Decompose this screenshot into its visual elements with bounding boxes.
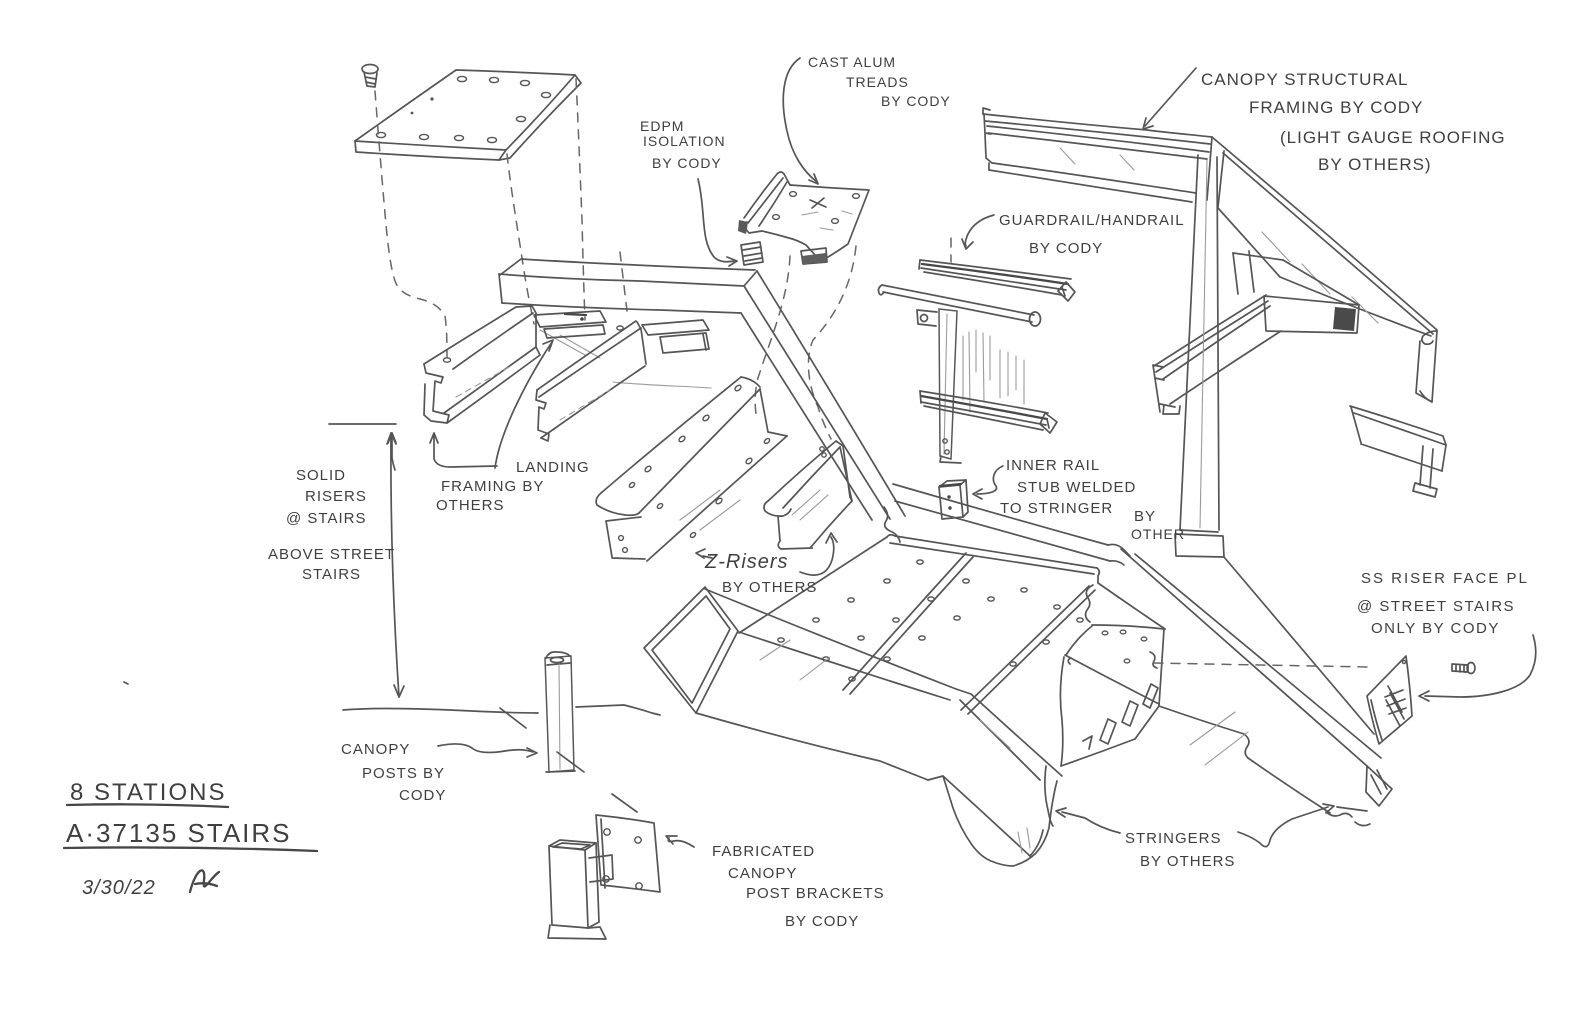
svg-text:BY CODY: BY CODY <box>1029 240 1103 257</box>
svg-text:BY CODY: BY CODY <box>881 93 951 109</box>
svg-text:@ STAIRS: @ STAIRS <box>286 510 366 527</box>
svg-text:CANOPY: CANOPY <box>728 865 797 882</box>
svg-text:INNER RAIL: INNER RAIL <box>1006 457 1100 474</box>
svg-text:FRAMING BY: FRAMING BY <box>441 478 544 495</box>
svg-text:CODY: CODY <box>399 787 446 804</box>
svg-text:(LIGHT GAUGE ROOFING: (LIGHT GAUGE ROOFING <box>1280 128 1506 147</box>
svg-text:GUARDRAIL/HANDRAIL: GUARDRAIL/HANDRAIL <box>999 212 1185 229</box>
svg-text:BY CODY: BY CODY <box>652 155 722 171</box>
svg-text:TO STRINGER: TO STRINGER <box>1000 500 1113 517</box>
svg-text:3/30/22: 3/30/22 <box>82 877 156 899</box>
svg-text:BY: BY <box>1134 508 1156 525</box>
svg-text:A·37135 STAIRS: A·37135 STAIRS <box>66 818 292 848</box>
svg-text:8 STATIONS: 8 STATIONS <box>70 779 226 806</box>
svg-text:CANOPY: CANOPY <box>341 741 410 758</box>
svg-text:Z-Risers: Z-Risers <box>704 551 789 573</box>
svg-text:BY OTHERS: BY OTHERS <box>722 579 817 596</box>
svg-text:BY OTHERS: BY OTHERS <box>1140 853 1235 870</box>
svg-text:POSTS BY: POSTS BY <box>362 765 445 782</box>
svg-text:BY OTHERS): BY OTHERS) <box>1318 155 1432 174</box>
svg-text:ONLY BY CODY: ONLY BY CODY <box>1371 620 1500 637</box>
svg-text:STUB WELDED: STUB WELDED <box>1017 479 1136 496</box>
svg-text:FABRICATED: FABRICATED <box>712 843 815 860</box>
svg-text:STAIRS: STAIRS <box>302 566 361 583</box>
svg-text:OTHER: OTHER <box>1131 526 1185 542</box>
svg-text:SOLID: SOLID <box>296 467 346 484</box>
svg-text:@ STREET STAIRS: @ STREET STAIRS <box>1357 598 1515 615</box>
svg-text:TREADS: TREADS <box>846 74 909 90</box>
svg-text:SS RISER FACE PL: SS RISER FACE PL <box>1361 570 1529 587</box>
svg-text:EDPM: EDPM <box>640 118 684 134</box>
svg-text:CANOPY STRUCTURAL: CANOPY STRUCTURAL <box>1201 70 1409 89</box>
svg-text:CAST ALUM: CAST ALUM <box>808 54 896 70</box>
svg-text:BY CODY: BY CODY <box>785 913 859 930</box>
svg-text:ISOLATION: ISOLATION <box>643 133 726 149</box>
svg-text:LANDING: LANDING <box>516 459 590 476</box>
svg-text:FRAMING BY CODY: FRAMING BY CODY <box>1249 98 1423 117</box>
svg-text:ABOVE STREET: ABOVE STREET <box>268 546 395 563</box>
svg-text:POST BRACKETS: POST BRACKETS <box>746 885 885 902</box>
svg-text:OTHERS: OTHERS <box>436 497 505 514</box>
svg-text:STRINGERS: STRINGERS <box>1125 830 1222 847</box>
svg-text:RISERS: RISERS <box>305 488 367 505</box>
